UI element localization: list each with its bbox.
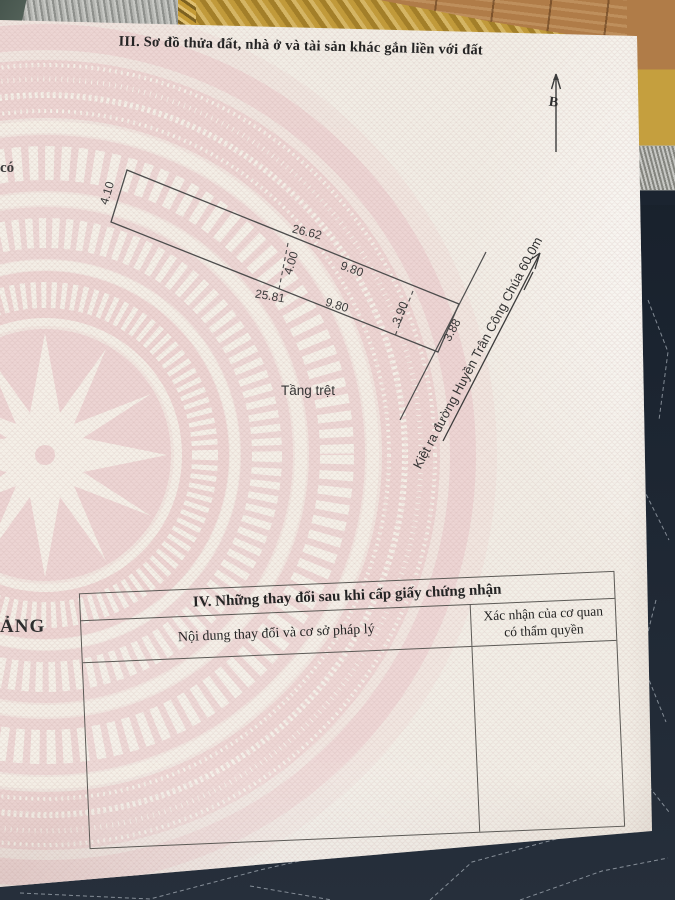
certificate-page: III. Sơ đồ thửa đất, nhà ở và tài sản kh… <box>0 0 675 900</box>
dim-left-edge: 4.10 <box>97 179 117 206</box>
dim-right-divider: 3.90 <box>389 299 411 326</box>
north-arrow-icon <box>552 74 561 152</box>
dim-top-2: 9.80 <box>339 258 366 279</box>
dim-inner-divider: 4.00 <box>281 249 301 276</box>
section4-table: IV. Những thay đổi sau khi cấp giấy chứn… <box>79 571 625 849</box>
col-header-confirmation: Xác nhận của cơ quan có thẩm quyền <box>471 599 616 646</box>
content-cell-empty <box>83 647 480 848</box>
north-label: B <box>548 95 559 111</box>
alley-arrow-icon <box>443 253 540 441</box>
dim-bottom-2: 9.80 <box>324 295 351 315</box>
dim-top-1: 26.62 <box>291 222 324 243</box>
dim-street-edge: 3.88 <box>440 316 463 343</box>
alley-label: Kiệt ra đường Huyền Trân Công Chúa 60.0m <box>410 234 545 471</box>
col-header-confirmation-line2: có thẩm quyền <box>504 621 584 641</box>
floor-label: Tầng trệt <box>281 383 335 398</box>
confirmation-cell-empty <box>473 641 625 832</box>
